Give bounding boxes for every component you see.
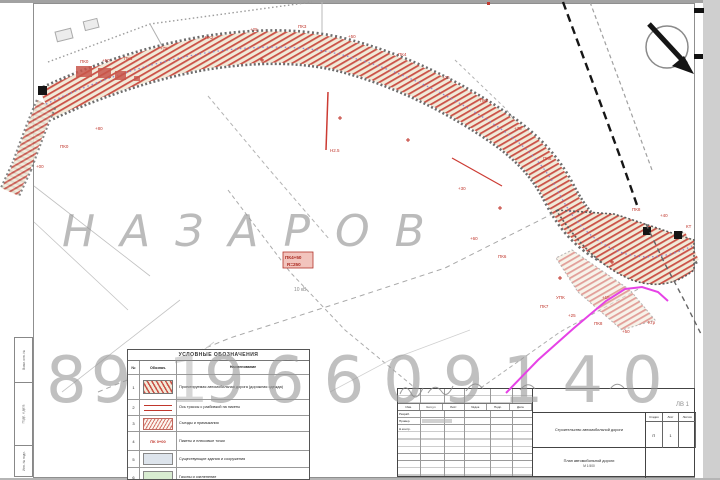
legend-row-name: Пикеты и плюсовые точки bbox=[177, 432, 309, 450]
red-cross-mark bbox=[338, 116, 342, 120]
side-stamp: Взам. инв. № Подп. и дата Инв. № подл. bbox=[14, 337, 33, 477]
legend-row: 4 ПК 0+00 Пикеты и плюсовые точки bbox=[128, 432, 309, 451]
title-block: Изм. Кол.уч Лист №док. Подп. Дата Разраб… bbox=[397, 388, 695, 477]
legend-row-name: Съезды и примыкания bbox=[177, 416, 309, 431]
picket-label: ПК5 bbox=[480, 98, 489, 103]
sheets-label: Листов bbox=[679, 413, 696, 421]
title-block-doc-name: Строительство автомобильной дороги bbox=[533, 413, 646, 448]
picket-label: УПК bbox=[556, 295, 565, 300]
picket-label: +80 bbox=[95, 126, 103, 131]
station-box: ПК4+50 R=250 bbox=[283, 252, 313, 268]
picket-label: ПК2 bbox=[205, 35, 214, 40]
legend-row-num: 1 bbox=[128, 375, 140, 399]
picket-label: ПК8 bbox=[594, 321, 603, 326]
drawing-name-text: План автомобильной дороги bbox=[564, 459, 615, 463]
picket-label: Н2.5 bbox=[330, 148, 340, 153]
side-stamp-cell: Подп. и дата bbox=[22, 405, 26, 424]
station-box-line1: ПК4+50 bbox=[285, 255, 302, 260]
picket-label: +50 bbox=[102, 58, 110, 63]
side-stamp-cell: Взам. инв. № bbox=[22, 350, 26, 370]
hdr-data: Дата bbox=[510, 404, 532, 409]
title-block-org-cell bbox=[646, 448, 696, 478]
picket-label: +75 bbox=[160, 46, 168, 51]
picket-label: ПК6 bbox=[543, 156, 552, 161]
picket-label: ПК8 bbox=[632, 207, 641, 212]
axis-swatch bbox=[144, 405, 172, 411]
role-nkontr: Н.контр. bbox=[398, 425, 420, 432]
legend-row-name: Существующие здания и сооружения bbox=[177, 451, 309, 467]
legend-row: 6 Газоны и озеленение bbox=[128, 468, 309, 480]
picket-label: +50 bbox=[622, 329, 630, 334]
picket-swatch: ПК 0+00 bbox=[150, 439, 165, 444]
legend-row: 5 Существующие здания и сооружения bbox=[128, 451, 309, 468]
picket-label: +25 bbox=[568, 313, 576, 318]
picket-label: +30 bbox=[458, 186, 466, 191]
stage-value: П bbox=[646, 422, 663, 448]
hdr-koluch: Кол.уч bbox=[420, 404, 442, 409]
side-stamp-cell: Инв. № подл. bbox=[22, 451, 26, 471]
picket-label: Ктр bbox=[648, 320, 656, 325]
hdr-izm: Изм. bbox=[398, 404, 420, 409]
title-block-header-row: Изм. Кол.уч Лист №док. Подп. Дата bbox=[398, 403, 532, 410]
role-razrab: Разраб. bbox=[398, 411, 420, 418]
greenery-swatch bbox=[143, 471, 173, 480]
buildings-swatch bbox=[143, 453, 173, 465]
picket-label: +50 bbox=[348, 34, 356, 39]
drawing-scale: М 1:500 bbox=[583, 464, 595, 468]
legend-row-name: Ось трассы с разбивкой на пикеты bbox=[177, 400, 309, 415]
station-box-line2: R=250 bbox=[287, 262, 301, 267]
title-block-stage-table: Стадия Лист Листов П 1 bbox=[646, 413, 696, 448]
designed-road bbox=[10, 47, 694, 330]
picket-label: +40 bbox=[660, 213, 668, 218]
hdr-podp: Подп. bbox=[487, 404, 509, 409]
picket-label: +25 bbox=[442, 75, 450, 80]
hdr-list: Лист bbox=[443, 404, 465, 409]
signature-name-blob bbox=[422, 419, 452, 423]
picket-label: +15 bbox=[602, 295, 610, 300]
legend-row-name: Газоны и озеленение bbox=[177, 468, 309, 480]
road-hatch-swatch bbox=[143, 380, 173, 394]
legend-title: УСЛОВНЫЕ ОБОЗНАЧЕНИЯ bbox=[128, 350, 309, 361]
picket-label: ПК1 bbox=[124, 56, 133, 61]
red-cross-mark bbox=[406, 138, 410, 142]
picket-label: ПК4 bbox=[398, 52, 407, 57]
legend-row: 2 Ось трассы с разбивкой на пикеты bbox=[128, 400, 309, 416]
legend-col-num: № bbox=[128, 361, 140, 374]
role-prover: Провер. bbox=[398, 418, 420, 425]
picket-label: +75 bbox=[514, 126, 522, 131]
picket-label: +60 bbox=[470, 236, 478, 241]
sheets-value bbox=[679, 422, 696, 448]
picket-label: ПК6 bbox=[498, 254, 507, 259]
title-block-role-labels: Разраб. Провер. Н.контр. bbox=[398, 411, 420, 433]
picket-label: ПК0 bbox=[60, 144, 69, 149]
legend-row: 1 Проектируемая автомобильная дорога (до… bbox=[128, 375, 309, 400]
picket-label: ПК0 bbox=[80, 59, 89, 64]
legend-table: УСЛОВНЫЕ ОБОЗНАЧЕНИЯ № Обознач. Наименов… bbox=[127, 349, 310, 480]
north-arrow-icon bbox=[646, 8, 704, 74]
stage-label: Стадия bbox=[646, 413, 663, 421]
legend-row-num: 5 bbox=[128, 451, 140, 467]
title-block-doc-code-cell bbox=[533, 389, 696, 413]
legend-row-num: 6 bbox=[128, 468, 140, 480]
picket-label: КТ bbox=[686, 224, 692, 229]
legend-row: 3 Съезды и примыкания bbox=[128, 416, 309, 432]
legend-col-sym: Обознач. bbox=[140, 361, 177, 374]
legend-row-num: 3 bbox=[128, 416, 140, 431]
title-block-drawing-name: План автомобильной дороги М 1:500 bbox=[533, 448, 646, 478]
picket-label: +25 bbox=[250, 27, 258, 32]
picket-label: ПК3 bbox=[298, 24, 307, 29]
sheet-value: 1 bbox=[663, 422, 680, 448]
red-cross-mark bbox=[558, 276, 562, 280]
legend-row-name: Проектируемая автомобильная дорога (доро… bbox=[177, 375, 309, 399]
sheet-label: Лист bbox=[663, 413, 680, 421]
legend-header-row: № Обознач. Наименование bbox=[128, 361, 309, 375]
picket-label: ПК7 bbox=[540, 304, 549, 309]
power-note-label: 10 кВ bbox=[294, 287, 307, 293]
drawing-sheet: { "watermark": { "name": "НАЗАРОВ", "pho… bbox=[0, 0, 720, 480]
red-cross-mark bbox=[498, 206, 502, 210]
legend-row-num: 4 bbox=[128, 432, 140, 450]
title-block-signature-grid: Изм. Кол.уч Лист №док. Подп. Дата Разраб… bbox=[398, 389, 533, 476]
legend-row-num: 2 bbox=[128, 400, 140, 415]
picket-label: +00 bbox=[36, 164, 44, 169]
hdr-dok: №док. bbox=[465, 404, 487, 409]
legend-col-name: Наименование bbox=[177, 361, 309, 374]
survey-markers bbox=[38, 2, 682, 239]
ramp-swatch bbox=[143, 418, 173, 430]
